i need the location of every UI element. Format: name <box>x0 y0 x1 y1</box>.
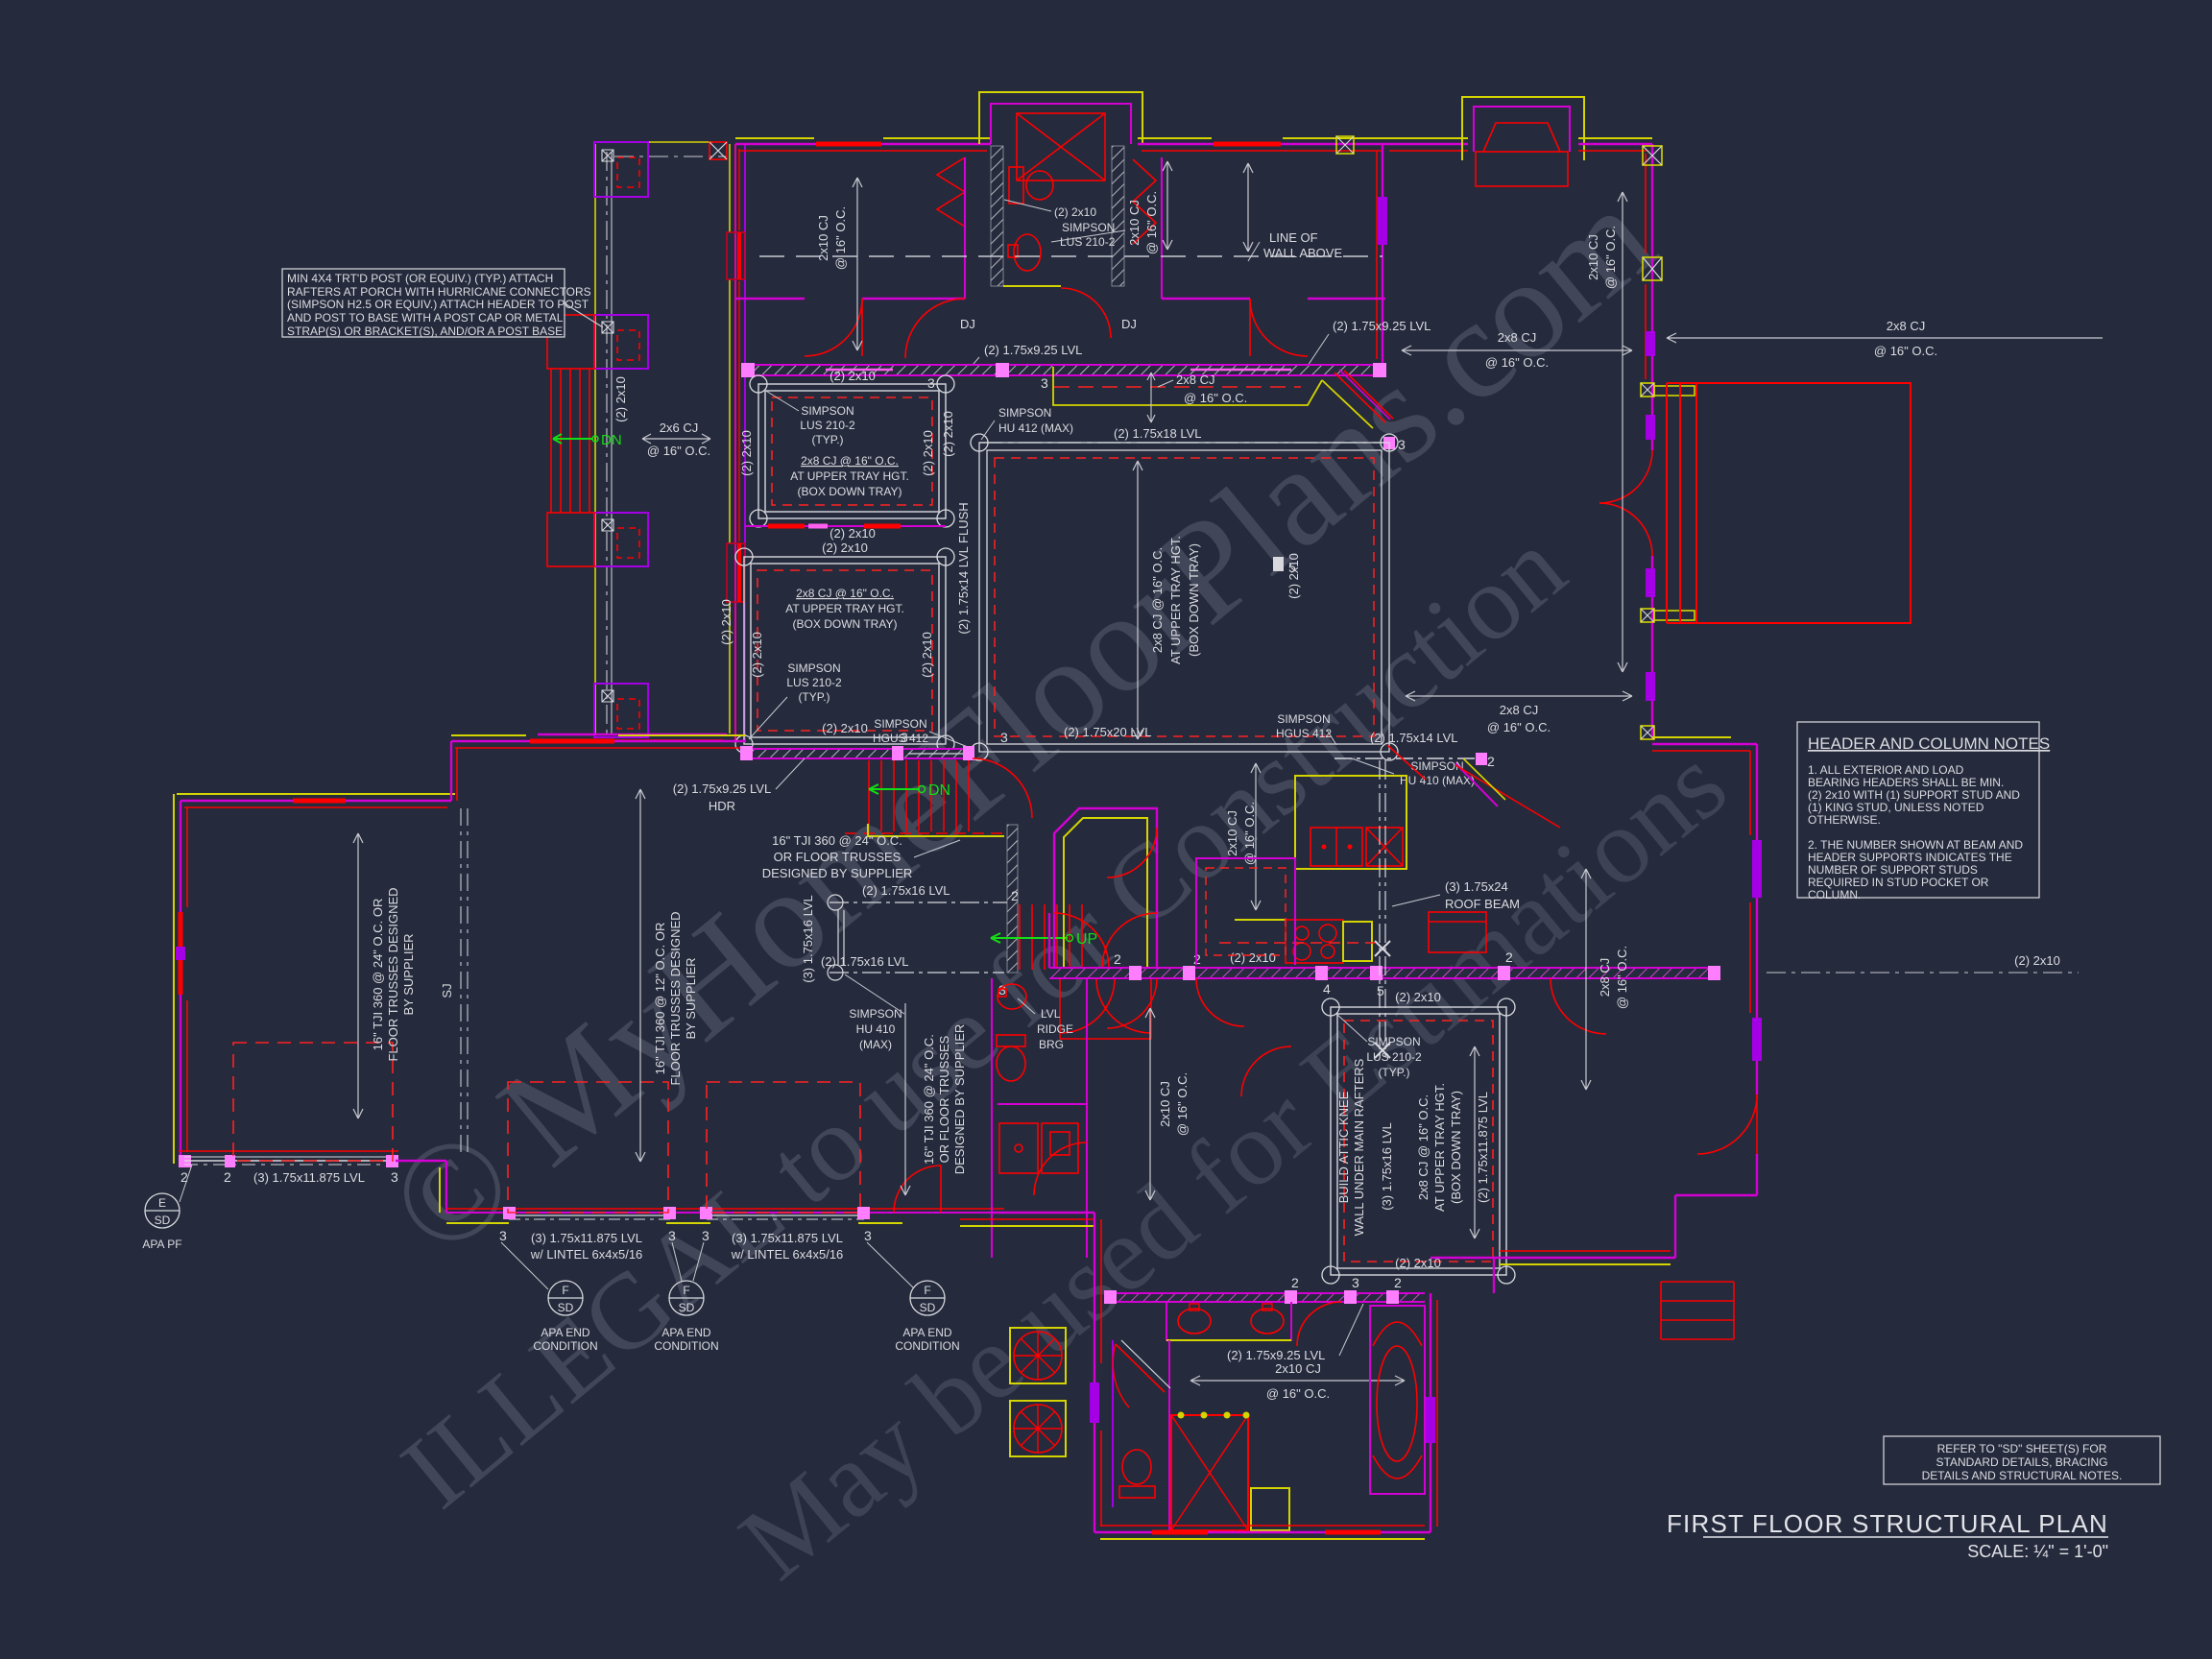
svg-text:AND POST TO BASE WITH A POST C: AND POST TO BASE WITH A POST CAP OR META… <box>287 311 564 325</box>
svg-text:SIMPSON: SIMPSON <box>801 404 854 418</box>
svg-text:2x10 CJ: 2x10 CJ <box>816 215 830 261</box>
svg-text:OTHERWISE.: OTHERWISE. <box>1808 813 1881 827</box>
svg-text:@ 16" O.C.: @ 16" O.C. <box>1184 391 1247 405</box>
svg-text:STANDARD DETAILS, BRACING: STANDARD DETAILS, BRACING <box>1936 1455 2108 1469</box>
svg-text:HEADER AND COLUMN NOTES: HEADER AND COLUMN NOTES <box>1808 734 2050 753</box>
svg-text:DESIGNED BY SUPPLIER: DESIGNED BY SUPPLIER <box>952 1024 967 1175</box>
svg-text:FLOOR TRUSSES DESIGNED: FLOOR TRUSSES DESIGNED <box>668 911 683 1085</box>
svg-text:SD: SD <box>679 1301 695 1314</box>
svg-text:2x8 CJ: 2x8 CJ <box>1598 958 1612 997</box>
svg-text:(1) KING STUD, UNLESS NOTED: (1) KING STUD, UNLESS NOTED <box>1808 801 1984 814</box>
svg-text:16" TJI 360 @ 12" O.C. OR: 16" TJI 360 @ 12" O.C. OR <box>653 923 667 1075</box>
svg-text:REQUIRED IN STUD POCKET OR: REQUIRED IN STUD POCKET OR <box>1808 876 1989 889</box>
svg-text:(2) 1.75x16 LVL: (2) 1.75x16 LVL <box>821 954 909 969</box>
svg-text:2: 2 <box>1505 950 1513 965</box>
svg-text:SJ: SJ <box>440 983 454 998</box>
svg-text:CONDITION: CONDITION <box>895 1339 959 1353</box>
svg-text:(2) 2x10: (2) 2x10 <box>750 632 764 678</box>
svg-text:LINE OF: LINE OF <box>1269 230 1318 245</box>
svg-text:(3) 1.75x16 LVL: (3) 1.75x16 LVL <box>1380 1122 1394 1211</box>
svg-text:BRG: BRG <box>1039 1038 1064 1051</box>
svg-text:BEARING HEADERS SHALL BE MIN.: BEARING HEADERS SHALL BE MIN. <box>1808 776 2004 789</box>
svg-text:APA END: APA END <box>661 1326 710 1339</box>
svg-text:(2) 2x10: (2) 2x10 <box>2014 953 2060 968</box>
svg-text:AT UPPER TRAY HGT.: AT UPPER TRAY HGT. <box>1168 536 1183 664</box>
svg-text:3: 3 <box>1000 730 1008 745</box>
svg-text:STRAP(S) OR BRACKET(S), AND/OR: STRAP(S) OR BRACKET(S), AND/OR A POST BA… <box>287 325 566 338</box>
svg-text:OR FLOOR TRUSSES: OR FLOOR TRUSSES <box>774 850 902 864</box>
svg-text:(2) 1.75x9.25 LVL: (2) 1.75x9.25 LVL <box>984 343 1082 357</box>
svg-text:SIMPSON: SIMPSON <box>1367 1035 1420 1048</box>
svg-text:MIN 4X4 TRT'D POST (OR EQUIV.): MIN 4X4 TRT'D POST (OR EQUIV.) (TYP.) AT… <box>287 272 553 285</box>
svg-text:(2) 1.75x16 LVL: (2) 1.75x16 LVL <box>862 883 950 898</box>
svg-text:LUS 210-2: LUS 210-2 <box>1060 235 1116 249</box>
svg-text:16" TJI 360 @ 24" O.C.: 16" TJI 360 @ 24" O.C. <box>772 833 902 848</box>
svg-text:@ 16" O.C.: @ 16" O.C. <box>1175 1072 1190 1136</box>
svg-text:SIMPSON: SIMPSON <box>874 717 926 731</box>
svg-text:2: 2 <box>180 1169 188 1185</box>
svg-text:(2) 1.75x11.875 LVL: (2) 1.75x11.875 LVL <box>1476 1092 1490 1203</box>
svg-text:2: 2 <box>1394 1275 1402 1290</box>
svg-text:DETAILS AND STRUCTURAL NOTES.: DETAILS AND STRUCTURAL NOTES. <box>1922 1469 2123 1482</box>
svg-text:HU 410: HU 410 <box>856 1022 896 1036</box>
svg-text:(2) 2x10 WITH (1) SUPPORT STUD: (2) 2x10 WITH (1) SUPPORT STUD AND <box>1808 788 2020 802</box>
svg-text:F: F <box>683 1284 689 1297</box>
svg-text:ROOF BEAM: ROOF BEAM <box>1445 897 1520 911</box>
svg-text:SD: SD <box>920 1301 936 1314</box>
svg-text:2x8 CJ @ 16" O.C.: 2x8 CJ @ 16" O.C. <box>796 587 894 600</box>
svg-text:BY SUPPLIER: BY SUPPLIER <box>684 957 698 1039</box>
svg-text:(BOX DOWN TRAY): (BOX DOWN TRAY) <box>793 617 898 631</box>
svg-text:REFER TO "SD" SHEET(S) FOR: REFER TO "SD" SHEET(S) FOR <box>1937 1442 2107 1455</box>
svg-text:(2) 1.75x9.25 LVL: (2) 1.75x9.25 LVL <box>673 781 771 796</box>
svg-text:3: 3 <box>864 1228 872 1243</box>
svg-text:APA PF: APA PF <box>142 1238 181 1251</box>
svg-text:SIMPSON: SIMPSON <box>849 1007 902 1021</box>
svg-text:(2) 1.75x14 LVL: (2) 1.75x14 LVL <box>1370 731 1458 745</box>
svg-text:@ 16" O.C.: @ 16" O.C. <box>1485 355 1549 370</box>
svg-text:@ 16" O.C.: @ 16" O.C. <box>1615 946 1629 1009</box>
svg-text:LUS 210-2: LUS 210-2 <box>800 419 855 432</box>
svg-text:3: 3 <box>391 1169 398 1185</box>
svg-text:COLUMN.: COLUMN. <box>1808 888 1861 902</box>
svg-text:(TYP.): (TYP.) <box>811 433 843 446</box>
svg-text:2: 2 <box>1291 1275 1299 1290</box>
svg-text:@ 16" O.C.: @ 16" O.C. <box>1603 226 1618 289</box>
svg-text:WALL ABOVE: WALL ABOVE <box>1263 246 1342 260</box>
svg-text:SD: SD <box>155 1214 171 1227</box>
svg-text:(2) 2x10: (2) 2x10 <box>1054 205 1096 219</box>
svg-text:2: 2 <box>224 1169 231 1185</box>
svg-text:HGUS 412: HGUS 412 <box>1276 727 1332 740</box>
svg-text:2x6 CJ: 2x6 CJ <box>660 421 698 435</box>
svg-text:DJ: DJ <box>960 317 975 331</box>
svg-text:DESIGNED BY SUPPLIER: DESIGNED BY SUPPLIER <box>762 866 913 880</box>
svg-text:2x8 CJ @ 16" O.C.: 2x8 CJ @ 16" O.C. <box>801 454 899 468</box>
svg-text:@ 16" O.C.: @ 16" O.C. <box>647 444 710 458</box>
svg-text:AT UPPER TRAY HGT.: AT UPPER TRAY HGT. <box>1432 1083 1447 1212</box>
svg-text:FIRST FLOOR STRUCTURAL PLAN: FIRST FLOOR STRUCTURAL PLAN <box>1667 1509 2108 1538</box>
svg-text:SD: SD <box>558 1301 574 1314</box>
svg-text:(BOX DOWN TRAY): (BOX DOWN TRAY) <box>798 485 902 498</box>
svg-text:RIDGE: RIDGE <box>1037 1022 1073 1036</box>
svg-text:APA END: APA END <box>902 1326 951 1339</box>
svg-text:(2) 1.75x14 LVL FLUSH: (2) 1.75x14 LVL FLUSH <box>956 502 971 634</box>
svg-text:3: 3 <box>1041 375 1048 391</box>
svg-text:(2) 1.75x9.25 LVL: (2) 1.75x9.25 LVL <box>1333 319 1431 333</box>
svg-text:NUMBER OF SUPPORT STUDS: NUMBER OF SUPPORT STUDS <box>1808 863 1978 877</box>
svg-text:3: 3 <box>1398 437 1406 452</box>
svg-text:CONDITION: CONDITION <box>533 1339 597 1353</box>
svg-text:SCALE: ¼" = 1'-0": SCALE: ¼" = 1'-0" <box>1967 1542 2108 1561</box>
svg-text:w/ LINTEL 6x4x5/16: w/ LINTEL 6x4x5/16 <box>731 1247 844 1262</box>
svg-text:2x8 CJ: 2x8 CJ <box>1176 373 1214 387</box>
svg-text:2x8 CJ @ 16" O.C.: 2x8 CJ @ 16" O.C. <box>1150 547 1165 653</box>
svg-text:5: 5 <box>1288 560 1296 575</box>
svg-text:SIMPSON: SIMPSON <box>1277 712 1330 726</box>
svg-text:16" TJI 360 @ 24" O.C. OR: 16" TJI 360 @ 24" O.C. OR <box>371 899 385 1051</box>
svg-text:APA END: APA END <box>541 1326 589 1339</box>
svg-text:(2) 2x10: (2) 2x10 <box>822 541 868 555</box>
svg-text:2: 2 <box>1487 754 1495 769</box>
svg-text:3: 3 <box>668 1228 676 1243</box>
svg-text:(3) 1.75x11.875 LVL: (3) 1.75x11.875 LVL <box>253 1170 365 1185</box>
svg-text:3: 3 <box>499 1228 507 1243</box>
svg-text:SIMPSON: SIMPSON <box>787 661 840 675</box>
svg-text:(TYP.): (TYP.) <box>1378 1066 1409 1079</box>
svg-text:DJ: DJ <box>1121 317 1137 331</box>
svg-text:F: F <box>562 1284 568 1297</box>
svg-text:SIMPSON: SIMPSON <box>998 406 1051 420</box>
svg-text:2x8 CJ: 2x8 CJ <box>1500 703 1538 717</box>
svg-text:LUS 210-2: LUS 210-2 <box>1366 1050 1422 1064</box>
svg-text:HDR: HDR <box>709 799 735 813</box>
svg-text:(SIMPSON H2.5 OR EQUIV.) ATTAC: (SIMPSON H2.5 OR EQUIV.) ATTACH HEADER T… <box>287 298 589 311</box>
svg-text:(2) 2x10: (2) 2x10 <box>739 430 754 476</box>
svg-text:(3) 1.75x16 LVL: (3) 1.75x16 LVL <box>801 895 815 983</box>
svg-text:2: 2 <box>1011 888 1019 903</box>
svg-text:(2) 1.75x20 LVL: (2) 1.75x20 LVL <box>1064 725 1152 739</box>
svg-text:CONDITION: CONDITION <box>654 1339 718 1353</box>
svg-text:4: 4 <box>1323 981 1331 997</box>
svg-text:3: 3 <box>901 730 908 745</box>
svg-text:2x8 CJ: 2x8 CJ <box>1498 330 1536 345</box>
svg-text:2x8 CJ @ 16" O.C.: 2x8 CJ @ 16" O.C. <box>1416 1094 1431 1200</box>
svg-text:2x10 CJ: 2x10 CJ <box>1127 200 1142 246</box>
svg-text:BUILD ATTIC KNEE: BUILD ATTIC KNEE <box>1336 1091 1351 1203</box>
svg-text:@ 16" O.C.: @ 16" O.C. <box>1144 191 1159 254</box>
svg-text:2. THE NUMBER SHOWN AT BEAM AN: 2. THE NUMBER SHOWN AT BEAM AND <box>1808 838 2023 852</box>
svg-text:(TYP.): (TYP.) <box>798 690 829 704</box>
svg-text:@ 16" O.C.: @ 16" O.C. <box>1266 1386 1330 1401</box>
svg-text:(2) 2x10: (2) 2x10 <box>822 721 868 735</box>
svg-text:AT UPPER TRAY HGT.: AT UPPER TRAY HGT. <box>790 469 909 483</box>
svg-text:@ 16" O.C.: @ 16" O.C. <box>833 206 848 270</box>
svg-text:AT UPPER TRAY HGT.: AT UPPER TRAY HGT. <box>785 602 904 615</box>
svg-text:(MAX): (MAX) <box>859 1038 892 1051</box>
svg-text:E: E <box>158 1196 166 1210</box>
svg-text:FLOOR TRUSSES DESIGNED: FLOOR TRUSSES DESIGNED <box>386 887 400 1061</box>
svg-text:LVL: LVL <box>1041 1007 1061 1021</box>
svg-text:SIMPSON: SIMPSON <box>1062 221 1115 234</box>
svg-text:(2) 2x10: (2) 2x10 <box>920 632 934 678</box>
svg-text:BY SUPPLIER: BY SUPPLIER <box>401 933 416 1015</box>
svg-text:(2) 2x10: (2) 2x10 <box>1395 990 1441 1004</box>
svg-text:DN: DN <box>928 782 950 799</box>
svg-text:(2) 2x10: (2) 2x10 <box>719 599 733 645</box>
svg-text:@ 16" O.C.: @ 16" O.C. <box>1487 720 1551 734</box>
svg-text:RAFTERS AT PORCH WITH HURRICAN: RAFTERS AT PORCH WITH HURRICANE CONNECTO… <box>287 285 591 299</box>
svg-text:5: 5 <box>1377 983 1384 998</box>
svg-text:16" TJI 360 @ 24" O.C.: 16" TJI 360 @ 24" O.C. <box>922 1034 936 1165</box>
svg-text:(2) 2x10: (2) 2x10 <box>1230 950 1276 965</box>
svg-text:DN: DN <box>601 432 622 448</box>
svg-text:(BOX DOWN TRAY): (BOX DOWN TRAY) <box>1187 543 1201 657</box>
svg-text:1. ALL EXTERIOR AND LOAD: 1. ALL EXTERIOR AND LOAD <box>1808 763 1964 777</box>
svg-text:(2) 1.75x18 LVL: (2) 1.75x18 LVL <box>1114 426 1202 441</box>
svg-text:(2) 2x10: (2) 2x10 <box>921 430 935 476</box>
svg-text:2x10 CJ: 2x10 CJ <box>1158 1081 1172 1127</box>
svg-text:LUS 210-2: LUS 210-2 <box>786 676 842 689</box>
svg-text:(2) 2x10: (2) 2x10 <box>613 376 628 422</box>
svg-text:WALL UNDER MAIN RAFTERS: WALL UNDER MAIN RAFTERS <box>1352 1058 1366 1236</box>
svg-text:3: 3 <box>927 375 935 391</box>
svg-text:(3) 1.75x11.875 LVL: (3) 1.75x11.875 LVL <box>531 1231 642 1245</box>
svg-text:3: 3 <box>702 1228 709 1243</box>
svg-text:2x8 CJ: 2x8 CJ <box>1887 319 1925 333</box>
svg-text:(2) 2x10: (2) 2x10 <box>941 411 955 457</box>
svg-text:F: F <box>924 1284 930 1297</box>
svg-text:(BOX DOWN TRAY): (BOX DOWN TRAY) <box>1449 1091 1463 1204</box>
svg-text:(2) 1.75x9.25 LVL: (2) 1.75x9.25 LVL <box>1227 1348 1325 1362</box>
svg-text:@ 16" O.C.: @ 16" O.C. <box>1242 802 1257 865</box>
svg-text:HU 412 (MAX): HU 412 (MAX) <box>998 421 1073 435</box>
svg-text:HEADER SUPPORTS INDICATES THE: HEADER SUPPORTS INDICATES THE <box>1808 851 2012 864</box>
svg-text:3: 3 <box>1352 1275 1359 1290</box>
svg-text:@ 16" O.C.: @ 16" O.C. <box>1874 344 1937 358</box>
svg-text:2x10 CJ: 2x10 CJ <box>1586 234 1600 280</box>
svg-text:(3) 1.75x24: (3) 1.75x24 <box>1445 879 1508 894</box>
svg-text:2: 2 <box>1114 951 1121 967</box>
svg-text:(3) 1.75x11.875 LVL: (3) 1.75x11.875 LVL <box>732 1231 843 1245</box>
svg-text:(2) 2x10: (2) 2x10 <box>829 369 876 383</box>
svg-text:UP: UP <box>1076 931 1097 948</box>
svg-text:2x10 CJ: 2x10 CJ <box>1225 810 1239 856</box>
svg-text:w/ LINTEL 6x4x5/16: w/ LINTEL 6x4x5/16 <box>530 1247 643 1262</box>
svg-text:OR FLOOR TRUSSES: OR FLOOR TRUSSES <box>937 1035 951 1163</box>
svg-text:HU 410 (MAX): HU 410 (MAX) <box>1400 774 1475 787</box>
svg-text:2x10 CJ: 2x10 CJ <box>1275 1361 1321 1376</box>
